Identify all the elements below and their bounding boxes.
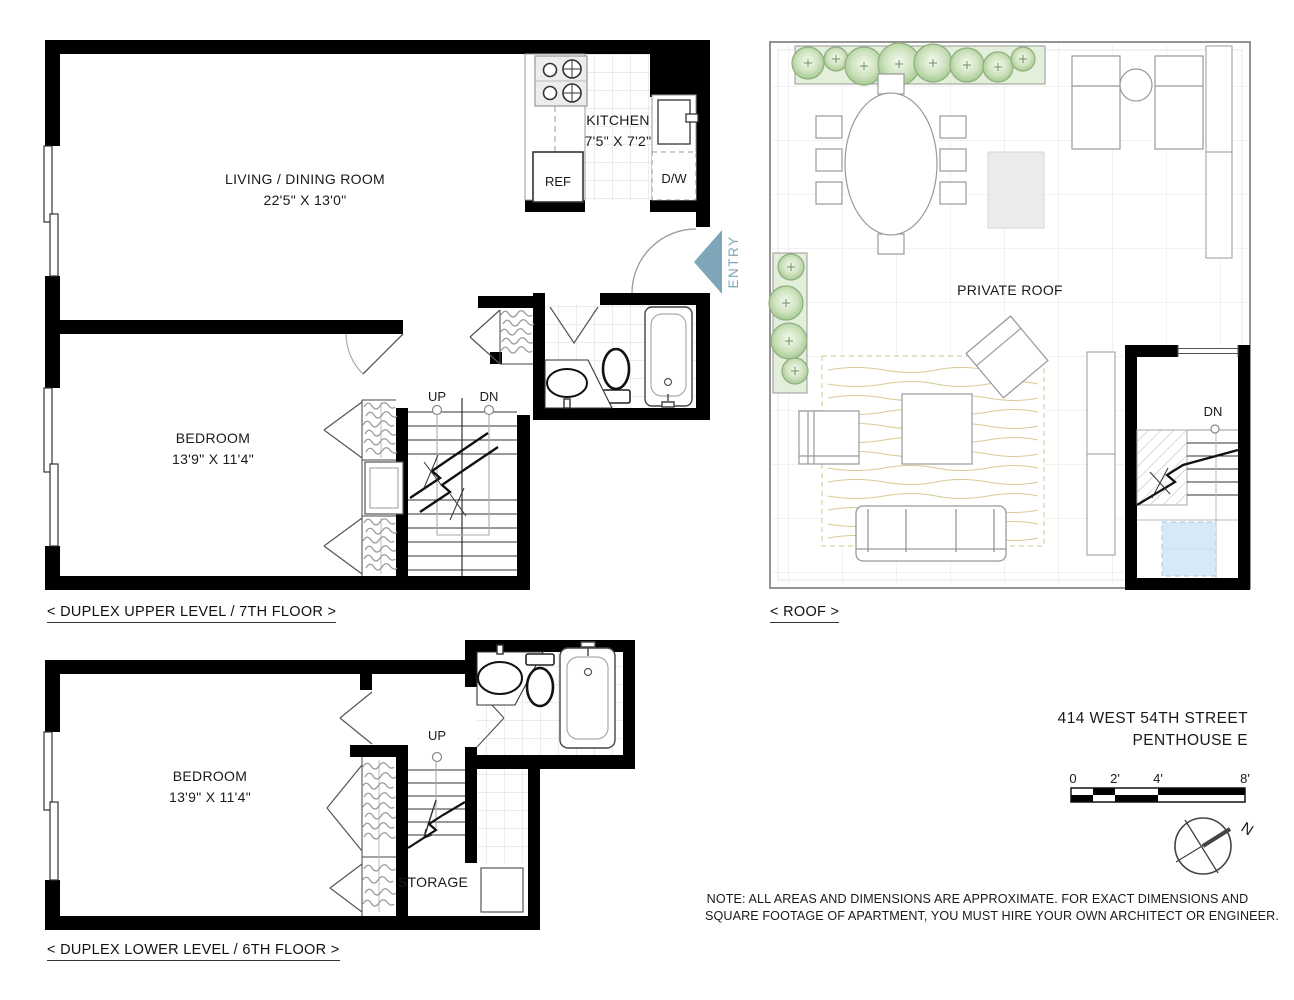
hall-floor-tiles <box>477 769 528 863</box>
entry-label: ENTRY <box>726 235 741 288</box>
lower-floor-plan: BEDROOM 13'9" X 11'4" UP STORAGE <box>44 640 635 930</box>
compass-north-label: N <box>1238 819 1256 839</box>
entry-arrow-icon <box>694 230 722 294</box>
sofa <box>856 506 1006 561</box>
scale-tick-2: 2' <box>1110 771 1120 786</box>
living-room-label: LIVING / DINING ROOM <box>225 171 385 187</box>
roof-stairs-dn-label: DN <box>1204 404 1223 419</box>
closet-door <box>330 864 362 912</box>
bedroom-door <box>346 334 403 374</box>
scale-tick-8: 8' <box>1240 771 1250 786</box>
refrigerator-label: REF <box>545 174 571 189</box>
console <box>1087 352 1115 555</box>
note-line-1: NOTE: ALL AREAS AND DIMENSIONS ARE APPRO… <box>705 891 1250 908</box>
entry-door-swing <box>632 229 696 293</box>
roof-plan-caption: < ROOF > <box>770 604 839 623</box>
dresser-icon <box>365 462 403 514</box>
coffee-table <box>902 394 972 464</box>
closet-door <box>324 518 362 574</box>
bedroom-label: BEDROOM <box>173 768 247 784</box>
compass-icon: N <box>1175 818 1256 874</box>
upper-plan-caption: < DUPLEX UPPER LEVEL / 7TH FLOOR > <box>47 604 336 623</box>
toilet-icon <box>526 654 554 706</box>
stairs <box>408 753 465 849</box>
address-line-2: PENTHOUSE E <box>1058 730 1248 752</box>
disclaimer-note: NOTE: ALL AREAS AND DIMENSIONS ARE APPRO… <box>705 891 1250 925</box>
bathtub-icon <box>560 642 615 748</box>
storage-label: STORAGE <box>398 874 468 890</box>
side-table <box>1120 69 1152 101</box>
bedroom-closets <box>324 400 403 576</box>
scale-bar: 0 2' 4' 8' <box>1069 771 1249 802</box>
address-block: 414 WEST 54TH STREET PENTHOUSE E <box>1058 708 1248 752</box>
scale-tick-0: 0 <box>1069 771 1076 786</box>
roof-stair-bulkhead: DN <box>1125 345 1250 590</box>
scale-tick-4: 4' <box>1153 771 1163 786</box>
address-line-1: 414 WEST 54TH STREET <box>1058 708 1248 730</box>
storage-shelf <box>481 868 523 912</box>
toilet-icon <box>602 349 630 403</box>
roof-plan: DN PRIVATE ROOF <box>769 42 1250 590</box>
kitchen-label: KITCHEN <box>586 112 650 128</box>
living-room-dims: 22'5" X 13'0" <box>263 192 346 208</box>
closet-door <box>324 402 362 458</box>
bedroom-dims: 13'9" X 11'4" <box>169 789 251 805</box>
kitchen-dims: 7'5" X 7'2" <box>585 133 652 149</box>
bedroom-dims: 13'9" X 11'4" <box>172 451 254 467</box>
lower-plan-caption: < DUPLEX LOWER LEVEL / 6TH FLOOR > <box>47 942 340 961</box>
bedroom-label: BEDROOM <box>176 430 250 446</box>
roof-mat <box>988 152 1044 228</box>
upper-floor-plan: LIVING / DINING ROOM 22'5" X 13'0" KITCH… <box>44 40 741 590</box>
note-line-2: SQUARE FOOTAGE OF APARTMENT, YOU MUST HI… <box>705 908 1250 925</box>
stairs-up-label: UP <box>428 728 446 743</box>
stairs-dn-label: DN <box>480 389 499 404</box>
floor-plan-sheet: LIVING / DINING ROOM 22'5" X 13'0" KITCH… <box>0 0 1294 1000</box>
bedroom-closets <box>327 757 396 916</box>
stairs-up-label: UP <box>428 389 446 404</box>
floor-plan-drawing: LIVING / DINING ROOM 22'5" X 13'0" KITCH… <box>0 0 1294 1000</box>
bedroom-door <box>340 692 372 744</box>
armchair <box>799 411 859 464</box>
dishwasher-label: D/W <box>661 171 687 186</box>
window-icon <box>44 732 58 880</box>
stove-icon <box>535 56 587 106</box>
stairs <box>408 398 517 576</box>
private-roof-label: PRIVATE ROOF <box>957 282 1063 298</box>
bathtub-icon <box>645 307 692 407</box>
right-planter-bench <box>1206 46 1232 258</box>
closet-door <box>327 765 362 851</box>
